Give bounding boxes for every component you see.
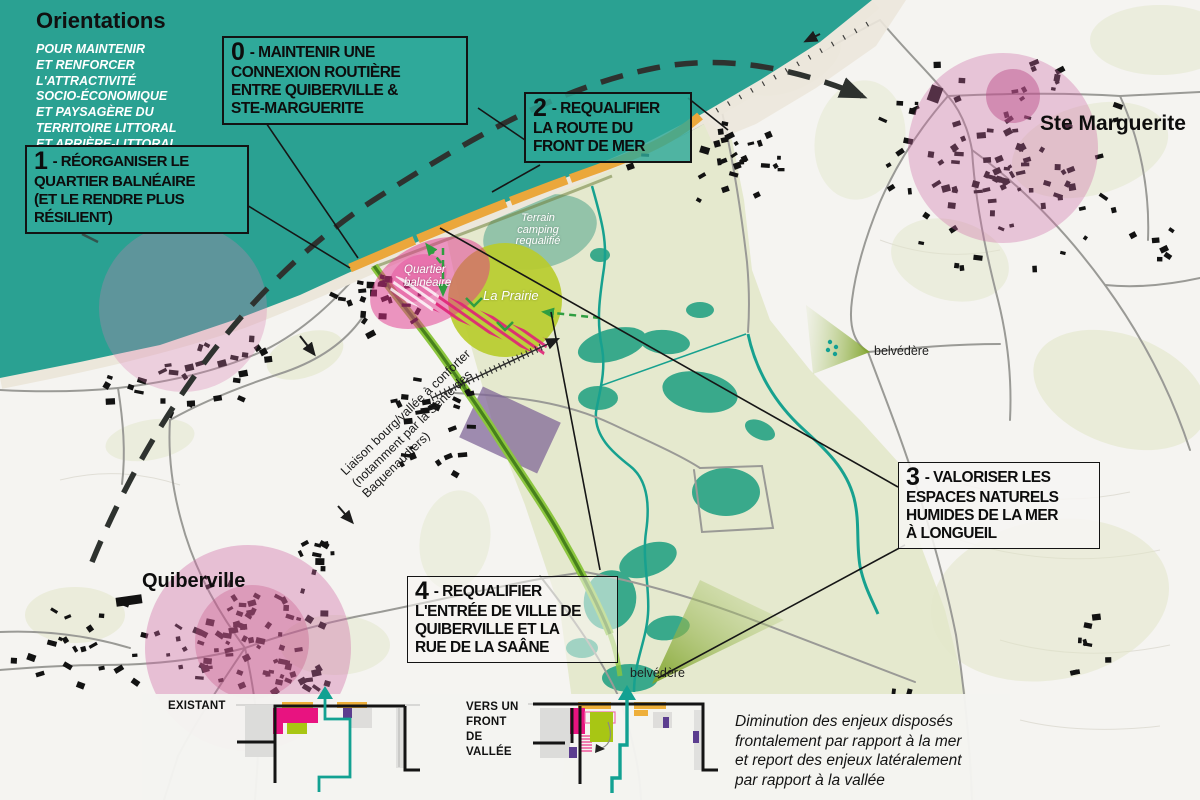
orientation-box-0: 0 - MAINTENIR UNE CONNEXION ROUTIÈRE ENT… (222, 36, 468, 125)
orientation-text: - REQUALIFIER LA ROUTE DU FRONT DE MER (533, 100, 660, 155)
orientation-box-3: 3 - VALORISER LES ESPACES NATURELS HUMID… (898, 462, 1100, 549)
orientation-text: - RÉORGANISER LE QUARTIER BALNÉAIRE (ET … (34, 153, 195, 226)
orientation-box-4: 4 - REQUALIFIER L'ENTRÉE DE VILLE DE QUI… (407, 576, 618, 663)
orientation-box-2: 2 - REQUALIFIER LA ROUTE DU FRONT DE MER (524, 92, 692, 163)
orientation-text: - REQUALIFIER L'ENTRÉE DE VILLE DE QUIBE… (415, 583, 581, 656)
page-subtitle: POUR MAINTENIR ET RENFORCER L'ATTRACTIVI… (36, 42, 246, 153)
page-title: Orientations (36, 8, 246, 34)
orientation-text: - MAINTENIR UNE CONNEXION ROUTIÈRE ENTRE… (231, 44, 400, 117)
orientation-number: 3 (906, 463, 921, 491)
orientation-number: 0 (231, 38, 246, 66)
label-belvedere-north: belvédère (874, 344, 929, 358)
label-quiberville: Quiberville (142, 570, 245, 593)
legend-caption: Diminution des enjeux disposés frontalem… (735, 712, 962, 790)
legend-label-existant: EXISTANT (168, 700, 226, 712)
orientation-text: - VALORISER LES ESPACES NATURELS HUMIDES… (906, 469, 1058, 542)
label-ste-marguerite: Ste Marguerite (1040, 112, 1186, 136)
orientation-number: 4 (415, 577, 430, 605)
orientation-number: 2 (533, 94, 548, 122)
label-camping: Terrain camping requalifié (508, 213, 568, 248)
label-belvedere-south: belvédère (630, 666, 685, 680)
orientation-number: 1 (34, 147, 49, 175)
label-quartier-balneaire: Quartier balnéaire (404, 264, 451, 290)
legend-label-vallee: VERS UN FRONT DE VALLÉE (466, 700, 519, 760)
orientation-box-1: 1 - RÉORGANISER LE QUARTIER BALNÉAIRE (E… (25, 145, 249, 234)
label-la-prairie: La Prairie (483, 288, 539, 303)
plan-poster: Orientations POUR MAINTENIR ET RENFORCER… (0, 0, 1200, 800)
title-block: Orientations POUR MAINTENIR ET RENFORCER… (36, 8, 246, 153)
